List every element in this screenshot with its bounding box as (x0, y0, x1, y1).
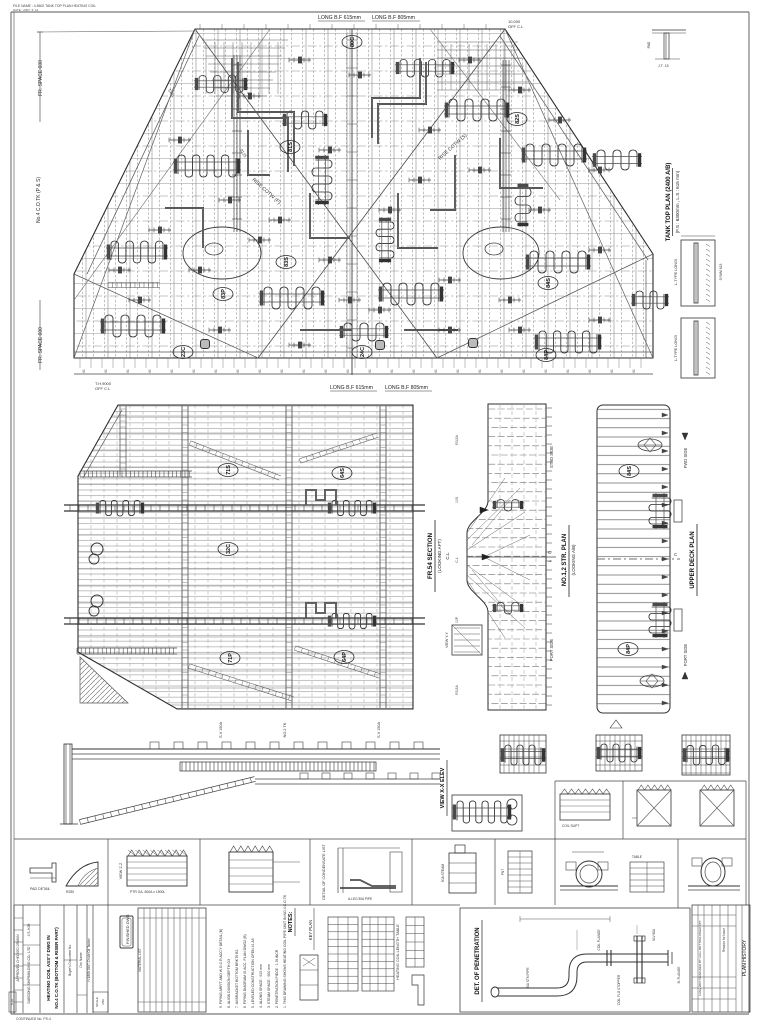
svg-text:61: 61 (500, 369, 504, 373)
svg-text:APPROVED CHECKED DRAWN: APPROVED CHECKED DRAWN (16, 934, 20, 982)
svg-text:FR. SPACE 600: FR. SPACE 600 (38, 60, 44, 96)
svg-text:(LOOKING A/B): (LOOKING A/B) (571, 544, 576, 576)
svg-text:J.S. KIM: J.S. KIM (27, 923, 31, 936)
svg-text:R3,5A: R3,5A (455, 435, 459, 445)
svg-text:80C: 80C (350, 37, 356, 47)
svg-text:61: 61 (456, 369, 460, 373)
svg-text:82S: 82S (515, 114, 521, 124)
svg-text:SLV 80A: SLV 80A (652, 928, 656, 941)
svg-text:61: 61 (368, 369, 372, 373)
svg-text:MATERIAL LIST: MATERIAL LIST (138, 948, 142, 971)
svg-text:71P: 71P (228, 653, 234, 663)
svg-text:KEY PLAN: KEY PLAN (308, 920, 313, 940)
svg-text:61: 61 (82, 369, 86, 373)
svg-text:H-1808 DWT Crude Oil Tanker: H-1808 DWT Crude Oil Tanker (87, 937, 91, 981)
svg-text:DATE : 2007. 5. 14: DATE : 2007. 5. 14 (13, 8, 39, 12)
svg-text:50A STEAM: 50A STEAM (441, 864, 445, 883)
svg-text:1/50: 1/50 (101, 999, 105, 1005)
svg-text:S.V 150A: S.V 150A (377, 722, 381, 739)
svg-text:64P: 64P (342, 652, 348, 662)
svg-text:61: 61 (390, 369, 394, 373)
svg-text:61: 61 (236, 369, 240, 373)
svg-text:COIL FLANGE: COIL FLANGE (597, 930, 601, 951)
svg-text:FR. SPACE 600: FR. SPACE 600 (38, 327, 44, 363)
svg-text:TANK TOP PLAN (2400 A/B): TANK TOP PLAN (2400 A/B) (666, 163, 672, 242)
svg-text:3. STEAM SPACE : 600 mm: 3. STEAM SPACE : 600 mm (267, 964, 271, 1008)
svg-text:83S: 83S (284, 257, 290, 267)
svg-text:64S: 64S (340, 468, 346, 478)
svg-text:5. LEVELED CONSTRUCTION OPEN: 5. LEVELED CONSTRUCTION OPEN 41 A3 (251, 938, 255, 1008)
svg-text:OFF C.L: OFF C.L (508, 24, 524, 29)
svg-text:61: 61 (566, 369, 570, 373)
svg-text:NOTES:: NOTES: (288, 911, 294, 932)
svg-text:DAEDONG SHIPBUILDING CO., LTD: DAEDONG SHIPBUILDING CO., LTD (27, 946, 31, 1004)
svg-text:PORT SIDE: PORT SIDE (683, 644, 688, 667)
svg-text:Reason for Issue: Reason for Issue (722, 928, 726, 952)
svg-text:81S: 81S (288, 142, 294, 152)
svg-text:FWD SIDE: FWD SIDE (683, 448, 688, 469)
svg-text:61: 61 (346, 369, 350, 373)
svg-text:LONG B.F 615mm: LONG B.F 615mm (330, 385, 373, 391)
svg-text:61: 61 (148, 369, 152, 373)
svg-text:61: 61 (280, 369, 284, 373)
svg-text:FINISHED DWG: FINISHED DWG (125, 914, 130, 944)
svg-text:61: 61 (258, 369, 262, 373)
svg-text:7. All BRACKET BOTTOM BRKT6: 7. All BRACKET BOTTOM BRKT6 B2 (235, 950, 239, 1008)
svg-text:DET. OF PENETRATION: DET. OF PENETRATION (475, 927, 481, 994)
svg-text:Buyer's Document No.: Buyer's Document No. (68, 944, 72, 976)
svg-text:61: 61 (214, 369, 218, 373)
svg-text:S.V 150A: S.V 150A (219, 722, 223, 739)
svg-text:NO.4 C.O.TK (BOTTOM & RISER PA: NO.4 C.O.TK (BOTTOM & RISER PART) (54, 927, 59, 1009)
svg-text:NO.1,2 STR. PLAN: NO.1,2 STR. PLAN (562, 534, 568, 586)
svg-text:4. ALONG SPACE : 615 mm: 4. ALONG SPACE : 615 mm (259, 964, 263, 1008)
svg-text:SCALE: SCALE (95, 997, 99, 1007)
svg-text:(F.S : 6300mm , L.S : 615 mm): (F.S : 6300mm , L.S : 615 mm) (675, 170, 680, 233)
svg-text:24C: 24C (360, 347, 366, 357)
svg-text:PAD: PAD (647, 41, 651, 48)
svg-text:C.L: C.L (455, 557, 459, 562)
svg-text:61: 61 (478, 369, 482, 373)
svg-text:10P: 10P (455, 616, 459, 623)
svg-text:LONG B.F 615mm: LONG B.F 615mm (318, 15, 361, 21)
svg-text:L-TYPE LONGI: L-TYPE LONGI (674, 259, 678, 285)
svg-text:LONG B.F 805mm: LONG B.F 805mm (372, 15, 415, 21)
svg-text:9. PIPING ARR'T AND W.G.C.R: 9. PIPING ARR'T AND W.G.C.R ACC'Y DETAIL… (219, 929, 223, 1008)
svg-text:2. PENETRATION PIECE : 1.5t I: 2. PENETRATION PIECE : 1.5t INCR (275, 949, 279, 1008)
svg-text:J.T. 15: J.T. 15 (658, 64, 669, 68)
svg-text:10S: 10S (455, 496, 459, 503)
svg-text:61: 61 (104, 369, 108, 373)
svg-text:L-TYPE LONGI: L-TYPE LONGI (674, 335, 678, 361)
svg-text:83P: 83P (221, 289, 227, 299)
svg-text:61: 61 (522, 369, 526, 373)
svg-text:LONG B.F 805mm: LONG B.F 805mm (385, 385, 428, 391)
svg-text:61: 61 (192, 369, 196, 373)
svg-text:VIEW X-X ELEV: VIEW X-X ELEV (440, 767, 446, 808)
svg-text:8. ALIGN DIVISION DEPTH G3: 8. ALIGN DIVISION DEPTH G3 (227, 959, 231, 1008)
svg-text:4 May 2007 DESIGNED BY HULL B: 4 May 2007 DESIGNED BY HULL BOTTOM RISER… (698, 920, 702, 996)
svg-text:84S: 84S (627, 466, 633, 476)
svg-text:HEATING COIL LENGTH TABLE: HEATING COIL LENGTH TABLE (396, 924, 400, 980)
svg-text:No.4 C.O.TK (P & S): No.4 C.O.TK (P & S) (36, 177, 42, 223)
svg-text:61: 61 (412, 369, 416, 373)
svg-text:OFF C.L: OFF C.L (95, 386, 111, 391)
svg-text:UPPER DECK PLAN: UPPER DECK PLAN (690, 531, 696, 588)
svg-text:FR.54 SECTION: FR.54 SECTION (427, 532, 434, 579)
svg-text:R250: R250 (66, 890, 74, 894)
svg-text:61: 61 (588, 369, 592, 373)
svg-text:23C: 23C (181, 347, 187, 357)
svg-text:TABLE: TABLE (632, 855, 642, 859)
svg-text:61: 61 (170, 369, 174, 373)
svg-text:50A STM PIPE: 50A STM PIPE (526, 967, 530, 988)
svg-text:61: 61 (302, 369, 306, 373)
svg-text:Doc Name: Doc Name (79, 952, 83, 967)
svg-text:61: 61 (610, 369, 614, 373)
svg-text:COIL SUPT: COIL SUPT (562, 824, 579, 828)
svg-text:PLAN HISTORY: PLAN HISTORY (742, 939, 748, 976)
svg-text:PAD DETAIL: PAD DETAIL (30, 887, 50, 891)
svg-text:84P: 84P (544, 350, 550, 360)
svg-text:A-LEG 50A PIPE: A-LEG 50A PIPE (348, 897, 372, 901)
svg-text:S-10: S-10 (10, 999, 14, 1006)
svg-text:61: 61 (324, 369, 328, 373)
svg-text:71S: 71S (226, 465, 232, 475)
svg-text:PNT: PNT (501, 869, 505, 875)
svg-text:84S: 84S (546, 278, 552, 288)
svg-text:61: 61 (434, 369, 438, 373)
svg-text:R3,5A: R3,5A (455, 685, 459, 695)
svg-text:HEATING COIL ASS'Y DWG IN: HEATING COIL ASS'Y DWG IN (46, 935, 51, 1001)
svg-text:VIEW Z-Z: VIEW Z-Z (119, 862, 123, 879)
svg-text:84P: 84P (626, 644, 632, 654)
svg-text:SYMM 615: SYMM 615 (719, 264, 723, 281)
svg-text:C.L: C.L (445, 552, 450, 560)
svg-text:61: 61 (126, 369, 130, 373)
svg-text:1. THIS DRAWING SHOWS HEATING: 1. THIS DRAWING SHOWS HEATING COIL PIPE … (283, 894, 287, 1008)
svg-text:6. PIPING DIAGRAM IS ACC. PLAN: 6. PIPING DIAGRAM IS ACC. PLAN DWG2 (B) (243, 934, 247, 1008)
svg-text:DETAIL OF CONDENSATE LIST: DETAIL OF CONDENSATE LIST (322, 844, 326, 900)
svg-text:(LOOKING AFT): (LOOKING AFT) (437, 539, 442, 573)
svg-text:COIL FLG STOPPER: COIL FLG STOPPER (617, 974, 621, 1005)
svg-text:PTR GA. 600A x 1500L: PTR GA. 600A x 1500L (130, 890, 165, 894)
svg-text:61: 61 (544, 369, 548, 373)
svg-text:PORT SIDE: PORT SIDE (549, 639, 554, 662)
svg-text:CONTINUED No. PS-4: CONTINUED No. PS-4 (16, 1017, 51, 1021)
svg-text:NO.2 TK: NO.2 TK (283, 722, 287, 737)
svg-text:32C: 32C (226, 544, 232, 554)
svg-text:B. FLANGE: B. FLANGE (677, 967, 681, 984)
svg-text:61: 61 (632, 369, 636, 373)
svg-text:STBD SIDE: STBD SIDE (549, 446, 554, 468)
svg-text:VIEW Y-Y: VIEW Y-Y (445, 632, 449, 648)
